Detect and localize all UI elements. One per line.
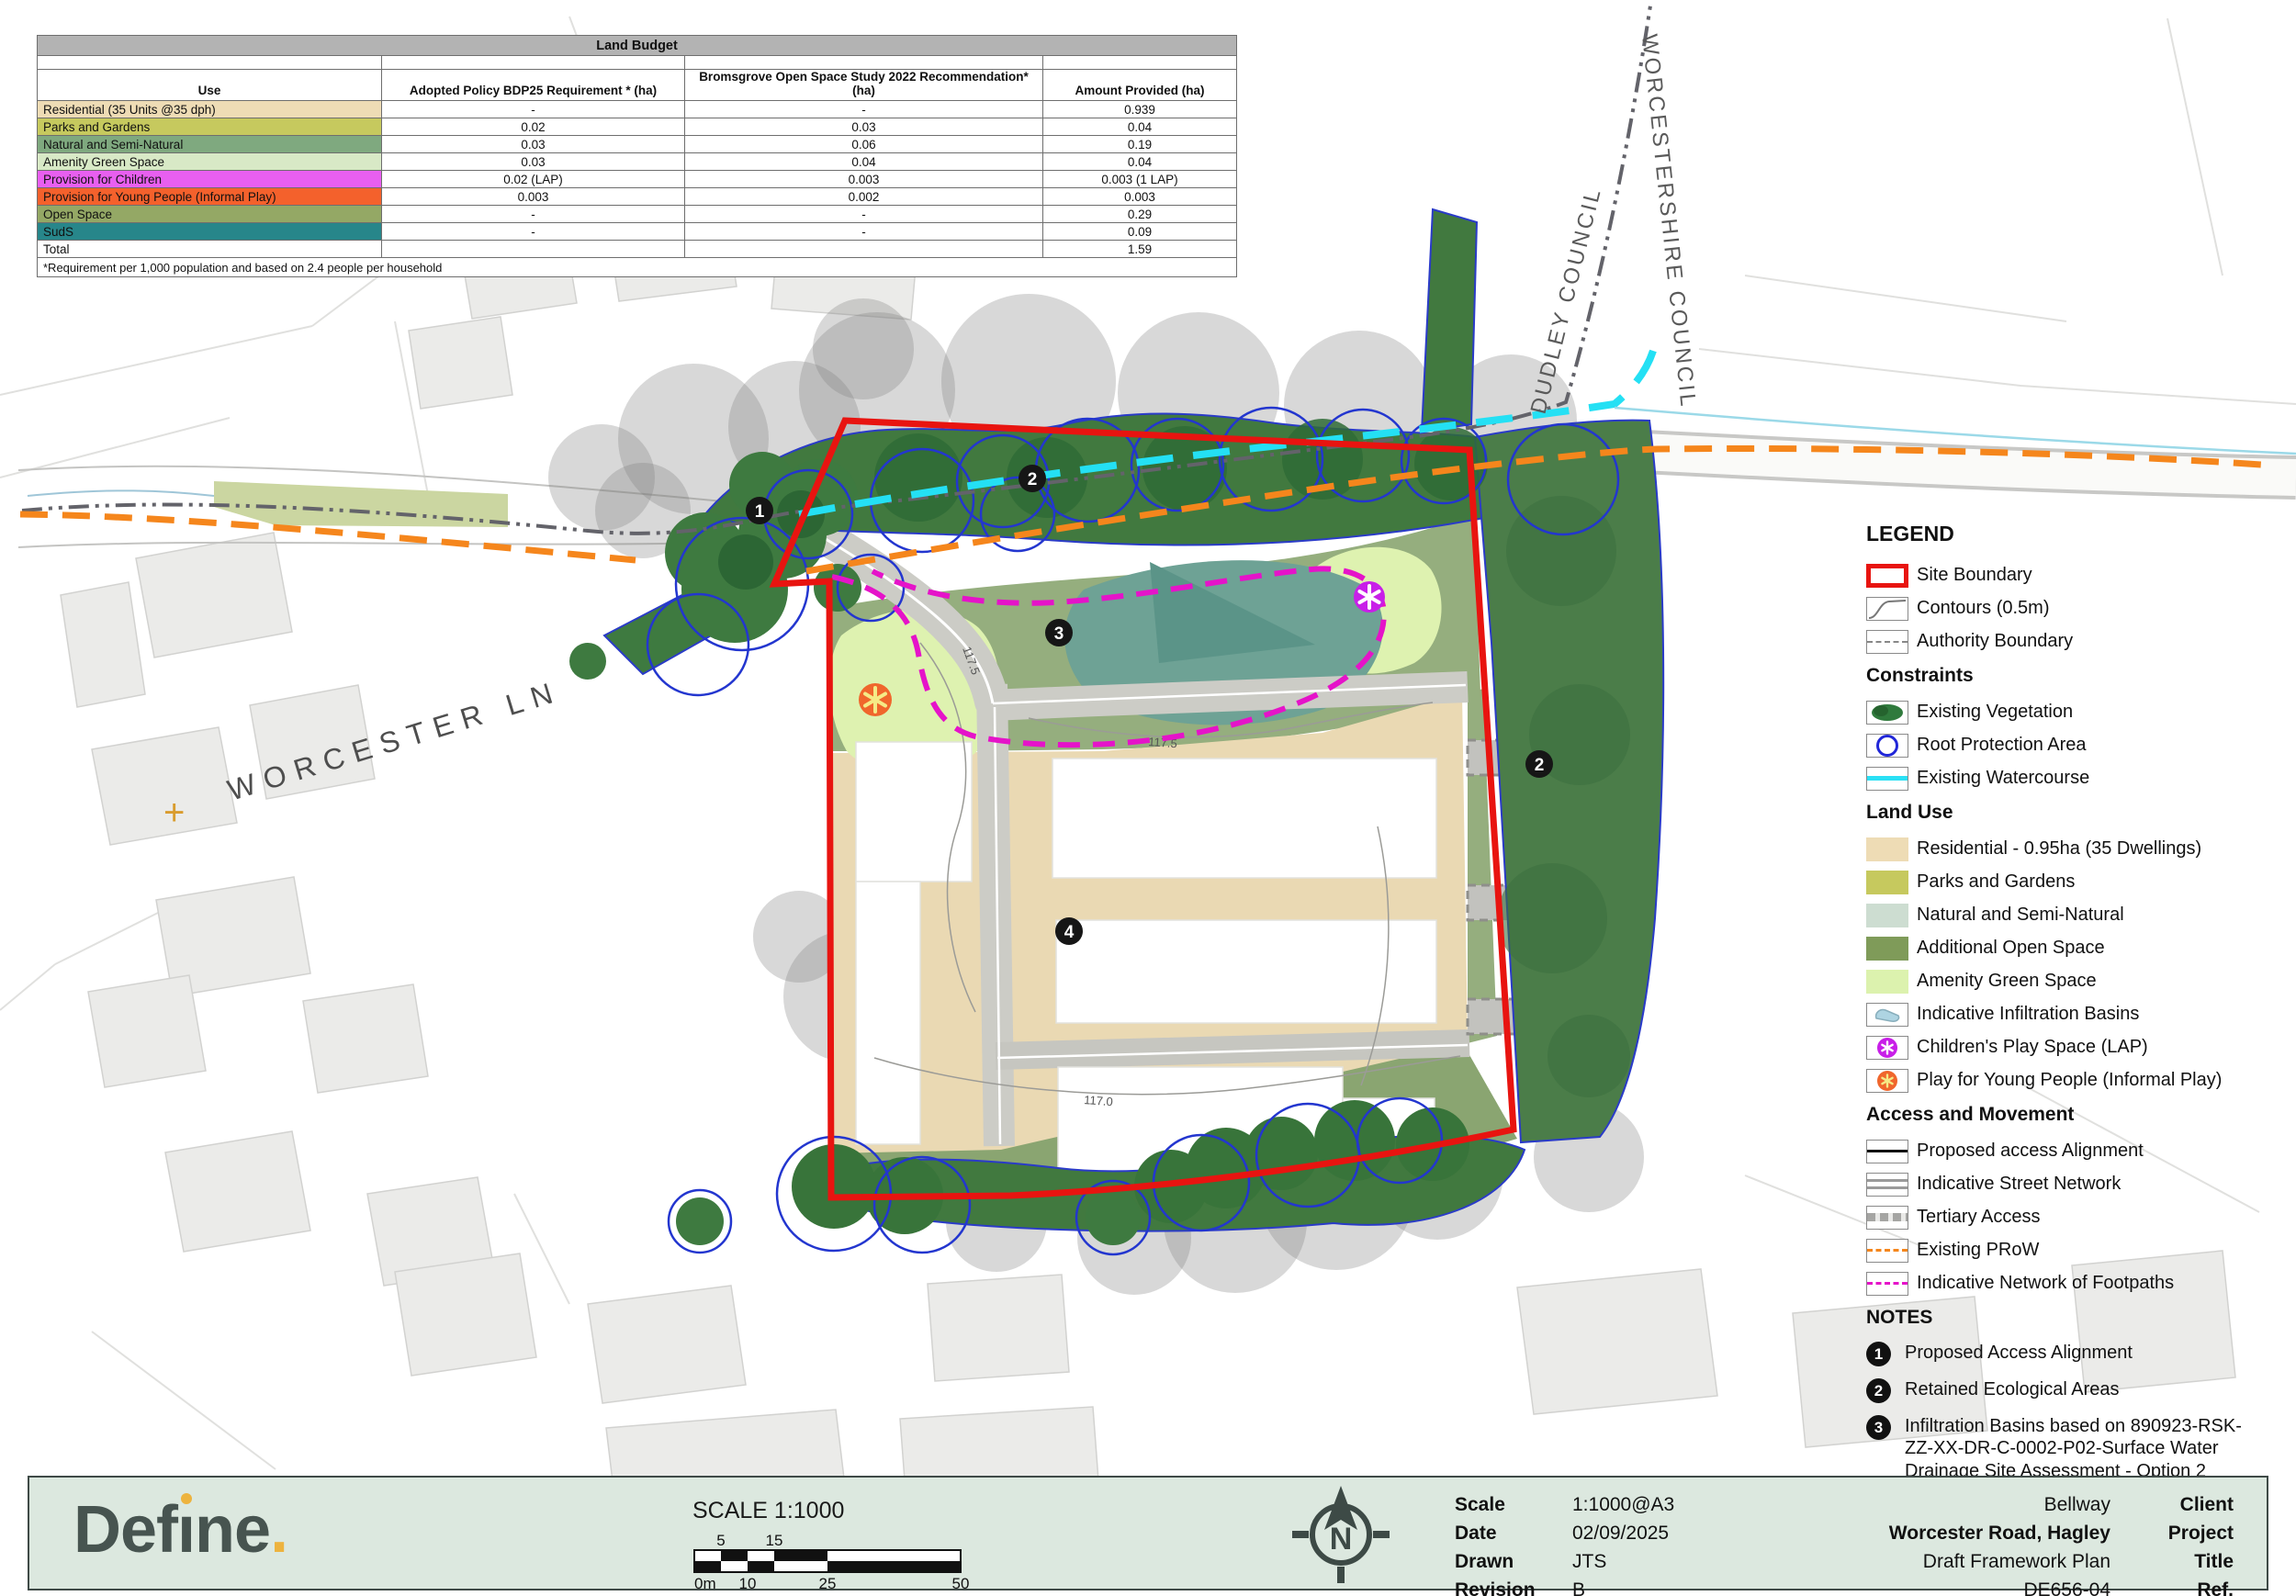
svg-text:1: 1 [755,502,765,522]
scale-heading: SCALE 1:1000 [692,1498,996,1524]
vegetation-swatch [1866,701,1908,725]
amenity-swatch [1866,970,1908,994]
legend-item-tertiary: Tertiary Access [1866,1205,2296,1230]
table-row: Residential (35 Units @35 dph)--0.939 [38,101,1237,118]
col-bdp25: Adopted Policy BDP25 Requirement * (ha) [382,70,685,101]
info-drawn: DrawnJTS [1455,1551,1674,1573]
north-arrow-icon: N [1289,1483,1392,1586]
note-1: 1 Proposed Access Alignment [1866,1342,2296,1366]
legend-title: LEGEND [1866,522,2296,546]
legend-panel: LEGEND Site Boundary Contours (0.5m) Aut… [1866,522,2296,1554]
logo-i: ı [177,1492,195,1568]
footpaths-swatch [1866,1272,1908,1296]
authority-boundary-swatch [1866,630,1908,654]
additional-open-space-swatch [1866,937,1908,961]
residential-swatch [1866,837,1908,861]
legend-item-amenity: Amenity Green Space [1866,969,2296,994]
col-provided: Amount Provided (ha) [1043,70,1237,101]
table-row-total: Total1.59 [38,241,1237,258]
legend-item-footpaths: Indicative Network of Footpaths [1866,1271,2296,1296]
info-revision: RevisionB [1455,1579,1674,1596]
tertiary-access-swatch [1866,1206,1908,1230]
svg-text:2: 2 [1028,470,1038,489]
prow-swatch [1866,1239,1908,1263]
legend-item-lap: Children's Play Space (LAP) [1866,1035,2296,1060]
site-boundary-swatch [1866,564,1908,588]
parks-swatch [1866,871,1908,894]
project-title: Draft Framework PlanTitle [1889,1551,2234,1573]
table-header-row: Use Adopted Policy BDP25 Requirement * (… [38,70,1237,101]
project-name: Worcester Road, HagleyProject [1889,1523,2234,1545]
watercourse-swatch [1866,767,1908,791]
scale-bar: 5 15 0m 10 25 50 [692,1532,996,1590]
legend-item-informal-play: Play for Young People (Informal Play) [1866,1068,2296,1093]
logo-period: . [270,1493,287,1567]
marker-2: 2 [1019,465,1046,492]
authority-label-dudley: DUDLEY COUNCIL [1526,185,1607,417]
note-3-badge: 3 [1866,1415,1891,1440]
svg-text:5: 5 [716,1532,725,1549]
project-ref: DE656-04Ref. [1889,1579,2234,1596]
legend-item-parks: Parks and Gardens [1866,870,2296,894]
table-row: Amenity Green Space0.030.040.04 [38,153,1237,171]
table-row: Provision for Children0.02 (LAP)0.0030.0… [38,171,1237,188]
legend-item-watercourse: Existing Watercourse [1866,766,2296,791]
legend-section-access: Access and Movement [1866,1104,2296,1126]
legend-item-basins: Indicative Infiltration Basins [1866,1002,2296,1027]
childrens-play-swatch [1866,1036,1908,1060]
table-row: Open Space--0.29 [38,206,1237,223]
marker-3: 3 [1045,619,1073,646]
legend-section-notes: NOTES [1866,1307,2296,1329]
col-bromsgrove: Bromsgrove Open Space Study 2022 Recomme… [685,70,1043,101]
table-row: Natural and Semi-Natural0.030.060.19 [38,136,1237,153]
scale-bar-area: SCALE 1:1000 5 15 0m 10 25 50 [692,1498,996,1595]
legend-item-root-protection: Root Protection Area [1866,733,2296,758]
infiltration-basin-swatch [1866,1003,1908,1027]
legend-item-additional-open-space: Additional Open Space [1866,936,2296,961]
table-footnote-row: *Requirement per 1,000 population and ba… [38,258,1237,277]
informal-play-swatch [1866,1069,1908,1093]
note-2: 2 Retained Ecological Areas [1866,1378,2296,1403]
legend-item-authority: Authority Boundary [1866,629,2296,654]
land-budget-table: Land Budget Use Adopted Policy BDP25 Req… [37,35,1237,277]
note-2-badge: 2 [1866,1378,1891,1403]
legend-section-landuse: Land Use [1866,802,2296,824]
title-block: Defıne. SCALE 1:1000 5 15 0m 10 25 50 [28,1476,2268,1590]
define-logo: Defıne. [73,1492,287,1568]
legend-item-street-network: Indicative Street Network [1866,1172,2296,1197]
legend-item-natural: Natural and Semi-Natural [1866,903,2296,927]
informal-play-icon [859,683,892,716]
svg-text:50: 50 [952,1575,970,1590]
svg-text:3: 3 [1054,624,1064,644]
logo-text: Def [73,1493,177,1567]
legend-item-contours: Contours (0.5m) [1866,596,2296,621]
svg-text:0m: 0m [694,1575,716,1590]
svg-text:15: 15 [766,1532,783,1549]
roadside-verge [214,481,508,527]
legend-item-prow: Existing PRoW [1866,1238,2296,1263]
info-date: Date02/09/2025 [1455,1523,1674,1545]
legend-item-access-alignment: Proposed access Alignment [1866,1139,2296,1163]
access-alignment-swatch [1866,1140,1908,1163]
table-spacer-row [38,56,1237,70]
svg-text:N: N [1330,1522,1353,1557]
svg-text:2: 2 [1535,756,1545,775]
legend-item-vegetation: Existing Vegetation [1866,700,2296,725]
project-client: BellwayClient [1889,1494,2234,1516]
svg-text:4: 4 [1064,923,1075,942]
marker-1: 1 [746,497,773,524]
marker-2b: 2 [1525,750,1553,778]
table-row: SudS--0.09 [38,223,1237,241]
svg-text:25: 25 [819,1575,837,1590]
natural-swatch [1866,904,1908,927]
root-protection-swatch [1866,734,1908,758]
col-use: Use [38,70,382,101]
table-row: Parks and Gardens0.020.030.04 [38,118,1237,136]
drawing-info: Scale1:1000@A3 Date02/09/2025 DrawnJTS R… [1455,1494,1674,1596]
survey-cross-icon: + [163,792,185,833]
legend-item-residential: Residential - 0.95ha (35 Dwellings) [1866,837,2296,861]
framework-plan-sheet: 117.5 117.5 117.0 WORCESTER LN DUDLEY CO… [0,0,2296,1596]
marker-4: 4 [1055,917,1083,945]
table-row: Provision for Young People (Informal Pla… [38,188,1237,206]
project-info: BellwayClient Worcester Road, HagleyProj… [1889,1494,2234,1596]
stream-line [28,490,214,496]
authority-label-worcestershire: WORCESTERSHIRE COUNCIL [1637,33,1701,410]
logo-i-dot-icon [181,1493,192,1504]
street-network-swatch [1866,1173,1908,1197]
table-footnote: *Requirement per 1,000 population and ba… [38,258,1237,277]
table-title: Land Budget [38,36,1237,56]
note-1-badge: 1 [1866,1342,1891,1366]
info-scale: Scale1:1000@A3 [1455,1494,1674,1516]
contours-swatch [1866,597,1908,621]
childrens-play-icon [1354,581,1385,613]
contour-label: 117.0 [1084,1093,1114,1108]
legend-item-site-boundary: Site Boundary [1866,563,2296,588]
legend-section-constraints: Constraints [1866,665,2296,687]
svg-text:10: 10 [739,1575,757,1590]
